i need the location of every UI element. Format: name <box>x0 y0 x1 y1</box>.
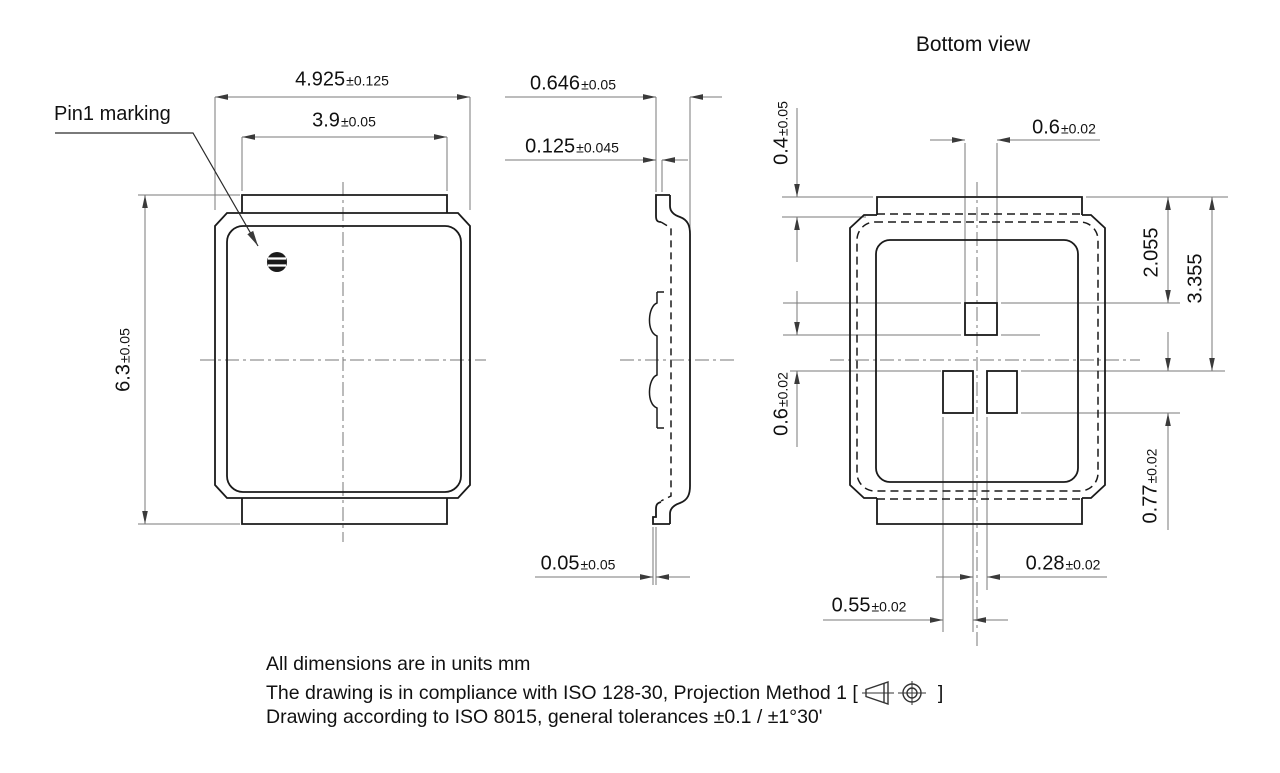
dim-tab-width: 3.9±0.05 <box>312 110 376 133</box>
pin1-leader-line <box>55 133 258 246</box>
dim-overall-width: 4.925±0.125 <box>295 69 389 92</box>
pin1-marking-dot <box>267 252 287 272</box>
package-body-outline <box>215 213 470 498</box>
dim-value: 6.3 <box>113 364 135 392</box>
dim-pad-gap-vertical: 0.6±0.02 <box>771 372 794 436</box>
dim-tolerance: ±0.02 <box>872 599 907 615</box>
bottom-bottom-tab <box>877 498 1082 524</box>
dim-tolerance: ±0.02 <box>775 372 791 407</box>
first-angle-projection-icon <box>862 689 934 711</box>
dim-tolerance: ±0.125 <box>346 73 389 89</box>
dim-pad-height: 0.77±0.02 <box>1140 449 1163 524</box>
top-tab <box>242 195 447 213</box>
dim-tolerance: ±0.02 <box>1066 557 1101 573</box>
dim-value: 0.28 <box>1026 553 1065 575</box>
right-pad <box>987 371 1017 413</box>
dim-value: 3.9 <box>312 110 340 132</box>
dim-tolerance: ±0.02 <box>1144 449 1160 484</box>
note-tolerances: Drawing according to ISO 8015, general t… <box>266 706 823 729</box>
dim-center-pad-width: 0.6±0.02 <box>1032 117 1096 140</box>
dim-value: 0.05 <box>541 553 580 575</box>
dim-lid-offset: 0.125±0.045 <box>525 136 619 159</box>
dim-tolerance: ±0.05 <box>581 557 616 573</box>
dim-value: 0.646 <box>530 73 580 95</box>
bottom-top-tab <box>877 197 1082 215</box>
bottom-tab <box>242 498 447 524</box>
dim-total-thickness: 0.646±0.05 <box>530 73 616 96</box>
dim-value: 0.125 <box>525 136 575 158</box>
dim-value: 0.6 <box>771 408 793 436</box>
side-hidden-edge <box>661 222 671 501</box>
dim-overall-height: 6.3±0.05 <box>113 328 136 392</box>
dim-value: 4.925 <box>295 69 345 91</box>
dim-standoff: 0.05±0.05 <box>541 553 616 576</box>
side-top-tab <box>656 195 670 222</box>
dim-tab-height: 0.4±0.05 <box>771 101 794 165</box>
dim-center-pad-offset: 2.055 <box>1141 226 1164 277</box>
dim-value: 2.055 <box>1141 227 1163 277</box>
dim-value: 0.4 <box>771 137 793 165</box>
dim-tolerance: ±0.045 <box>576 140 619 156</box>
dim-tolerance: ±0.05 <box>341 114 376 130</box>
dim-tolerance: ±0.05 <box>775 101 791 136</box>
hidden-body-edges <box>877 214 1082 499</box>
dim-value: 0.55 <box>832 595 871 617</box>
dim-value: 0.77 <box>1140 485 1162 524</box>
dim-tolerance: ±0.02 <box>1061 121 1096 137</box>
side-bottom-tab <box>653 502 670 524</box>
centerlines <box>200 182 1140 650</box>
dim-pad-gap-horizontal: 0.28±0.02 <box>1026 553 1101 576</box>
lid-outline <box>227 226 461 492</box>
center-pad <box>965 303 997 335</box>
note-projection-prefix: The drawing is in compliance with ISO 12… <box>266 682 858 704</box>
dim-corner-pads-offset: 3.355 <box>1185 252 1208 303</box>
note-projection-suffix: ] <box>938 682 943 704</box>
pin1-label: Pin1 marking <box>54 103 171 126</box>
dim-pad-width: 0.55±0.02 <box>832 595 907 618</box>
dim-value: 0.6 <box>1032 117 1060 139</box>
dim-value: 3.355 <box>1185 253 1207 303</box>
technical-drawing-page: Bottom view Pin1 marking 4.925±0.125 3.9… <box>0 0 1280 773</box>
view-title: Bottom view <box>916 33 1030 57</box>
dim-tolerance: ±0.05 <box>117 328 133 363</box>
dim-tolerance: ±0.05 <box>581 77 616 93</box>
note-units: All dimensions are in units mm <box>266 653 530 676</box>
left-pad <box>943 371 973 413</box>
